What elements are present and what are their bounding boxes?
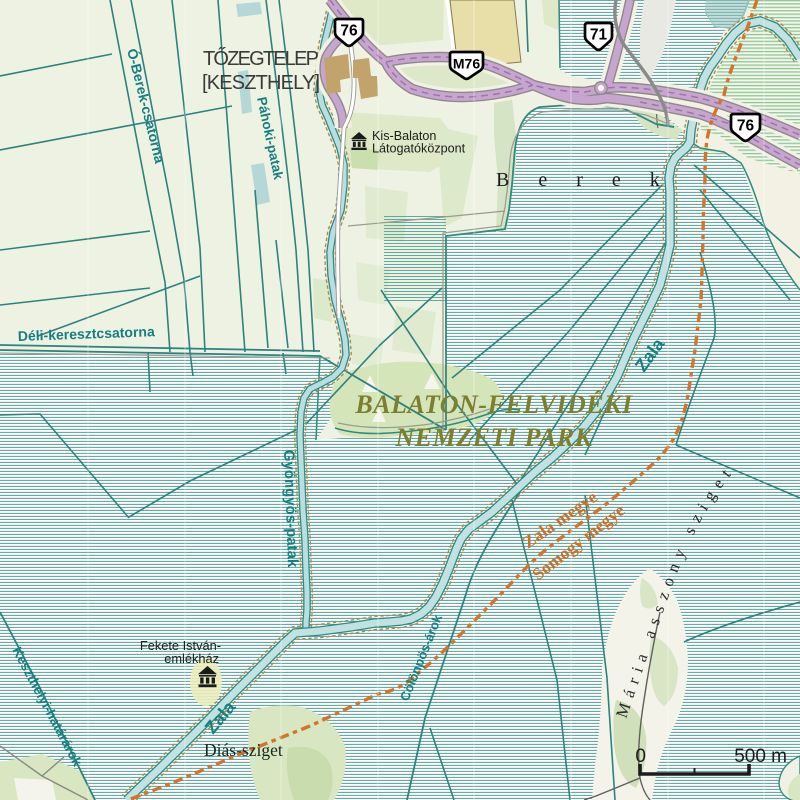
svg-text:Diás-sziget: Diás-sziget: [204, 740, 283, 760]
svg-text:500 m: 500 m: [734, 746, 787, 767]
svg-text:BALATON-FELVIDÉKI: BALATON-FELVIDÉKI: [354, 390, 633, 419]
svg-text:Látogatóközpont: Látogatóközpont: [372, 142, 466, 156]
svg-text:NEMZETI PARK: NEMZETI PARK: [395, 423, 594, 452]
svg-text:Berek: Berek: [496, 169, 689, 191]
svg-text:76: 76: [737, 118, 755, 135]
svg-text:TŐZEGTELEP: TŐZEGTELEP: [203, 47, 319, 70]
svg-text:[KESZTHELY]: [KESZTHELY]: [202, 72, 320, 94]
svg-text:76: 76: [340, 23, 358, 40]
svg-text:0: 0: [635, 746, 646, 767]
svg-text:71: 71: [590, 27, 608, 44]
svg-text:M76: M76: [453, 56, 480, 72]
svg-text:emlékház: emlékház: [164, 651, 219, 666]
